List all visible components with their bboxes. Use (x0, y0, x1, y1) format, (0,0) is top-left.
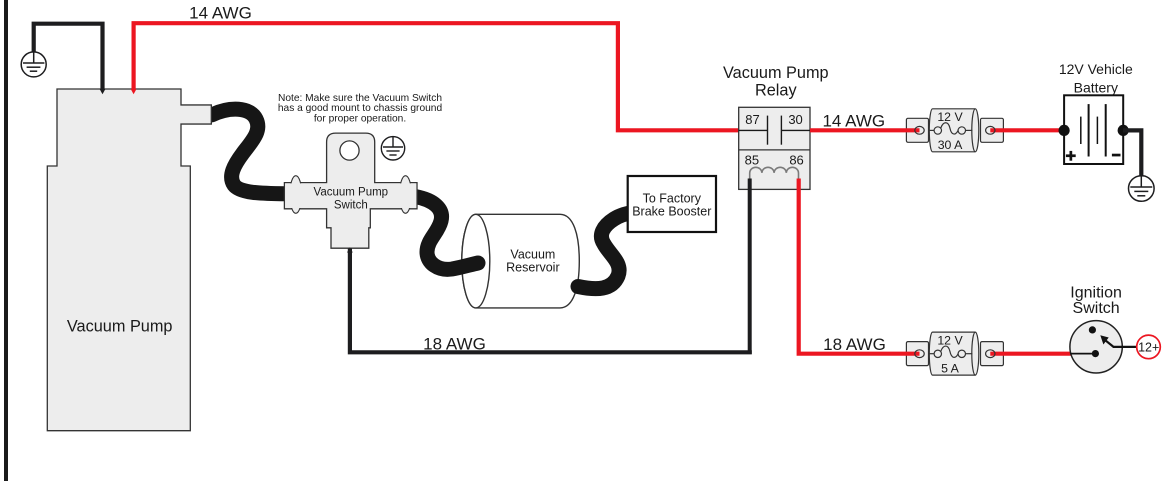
svg-text:Vacuum Pump: Vacuum Pump (67, 318, 173, 336)
svg-text:Switch: Switch (1073, 300, 1120, 317)
svg-text:12 V: 12 V (937, 110, 963, 124)
svg-text:Vacuum Pump: Vacuum Pump (314, 187, 389, 199)
svg-text:Battery: Battery (1074, 80, 1118, 96)
svg-text:12 V: 12 V (937, 334, 963, 348)
svg-text:Switch: Switch (334, 199, 368, 211)
svg-text:30: 30 (788, 112, 802, 127)
svg-text:for proper operation.: for proper operation. (314, 114, 406, 125)
svg-text:85: 85 (745, 153, 759, 168)
svg-text:14 AWG: 14 AWG (822, 111, 885, 130)
svg-text:Vacuum: Vacuum (510, 247, 555, 261)
svg-text:12+: 12+ (1138, 340, 1159, 354)
svg-text:Reservoir: Reservoir (506, 260, 560, 274)
svg-text:14 AWG: 14 AWG (189, 4, 252, 23)
svg-text:18 AWG: 18 AWG (423, 335, 486, 354)
svg-text:30 A: 30 A (938, 138, 963, 152)
svg-text:12V Vehicle: 12V Vehicle (1059, 61, 1133, 77)
svg-text:Brake Booster: Brake Booster (632, 204, 711, 218)
svg-text:87: 87 (745, 112, 759, 127)
svg-text:Vacuum Pump: Vacuum Pump (723, 64, 829, 82)
svg-text:86: 86 (789, 153, 803, 168)
svg-text:5 A: 5 A (941, 362, 960, 376)
svg-text:Relay: Relay (755, 82, 797, 100)
svg-text:18 AWG: 18 AWG (823, 335, 886, 354)
